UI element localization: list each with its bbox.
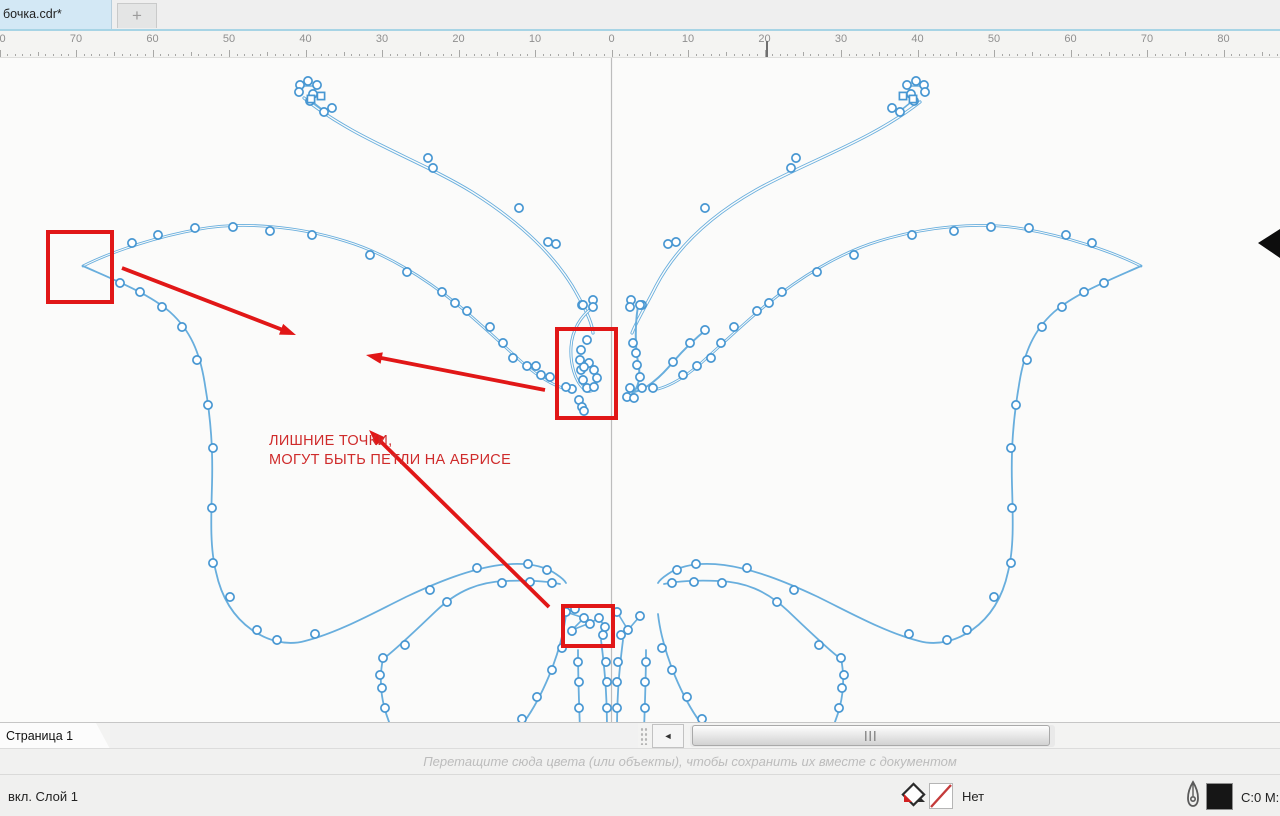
annotation-line1: ЛИШНИЕ ТОЧКИ, bbox=[269, 433, 392, 449]
path-node[interactable] bbox=[613, 678, 621, 686]
ruler-minor-tick bbox=[351, 54, 352, 56]
path-node[interactable] bbox=[463, 307, 471, 315]
path-node[interactable] bbox=[593, 374, 601, 382]
ruler-minor-tick bbox=[397, 54, 398, 56]
path-node[interactable] bbox=[575, 678, 583, 686]
path-node[interactable] bbox=[838, 684, 846, 692]
ruler-minor-tick bbox=[61, 54, 62, 56]
ruler-minor-tick bbox=[244, 54, 245, 56]
ruler-minor-tick bbox=[114, 52, 115, 56]
ruler-minor-tick bbox=[451, 54, 452, 56]
ruler-minor-tick bbox=[1055, 54, 1056, 56]
path-node[interactable] bbox=[577, 346, 585, 354]
ruler-minor-tick bbox=[237, 54, 238, 56]
ruler-minor-tick bbox=[527, 54, 528, 56]
path-node[interactable] bbox=[686, 339, 694, 347]
path-node[interactable] bbox=[552, 240, 560, 248]
path-node[interactable] bbox=[116, 279, 124, 287]
path-node[interactable] bbox=[226, 593, 234, 601]
path-node[interactable] bbox=[311, 630, 319, 638]
path-node[interactable] bbox=[632, 349, 640, 357]
path-node[interactable] bbox=[636, 301, 644, 309]
curve-segment[interactable] bbox=[521, 614, 566, 722]
path-node[interactable] bbox=[603, 704, 611, 712]
path-node-square[interactable] bbox=[899, 92, 906, 99]
ruler-minor-tick bbox=[803, 52, 804, 56]
path-node[interactable] bbox=[599, 631, 607, 639]
path-node[interactable] bbox=[546, 373, 554, 381]
document-tab-bar: бочка.cdr* + bbox=[0, 0, 1280, 29]
ruler-label: 30 bbox=[821, 33, 861, 45]
path-node[interactable] bbox=[429, 164, 437, 172]
vector-artwork[interactable] bbox=[0, 57, 1280, 722]
path-node[interactable] bbox=[579, 376, 587, 384]
ruler-minor-tick bbox=[1201, 54, 1202, 56]
path-node[interactable] bbox=[1023, 356, 1031, 364]
ruler-minor-tick bbox=[642, 54, 643, 56]
path-node[interactable] bbox=[718, 579, 726, 587]
ruler-minor-tick bbox=[443, 54, 444, 56]
path-node[interactable] bbox=[790, 586, 798, 594]
no-fill-swatch[interactable] bbox=[929, 783, 953, 809]
ruler-minor-tick bbox=[1277, 54, 1278, 56]
path-node[interactable] bbox=[950, 227, 958, 235]
path-node[interactable] bbox=[690, 578, 698, 586]
path-node[interactable] bbox=[209, 559, 217, 567]
path-node[interactable] bbox=[626, 384, 634, 392]
path-node[interactable] bbox=[1007, 444, 1015, 452]
ruler-minor-tick bbox=[1162, 54, 1163, 56]
ruler-minor-tick bbox=[749, 54, 750, 56]
ruler-major-tick bbox=[841, 50, 842, 57]
path-node[interactable] bbox=[636, 373, 644, 381]
path-node[interactable] bbox=[601, 623, 609, 631]
path-node[interactable] bbox=[840, 671, 848, 679]
page-tab[interactable]: Страница 1 bbox=[0, 723, 110, 749]
path-node[interactable] bbox=[630, 394, 638, 402]
ruler-minor-tick bbox=[1116, 54, 1117, 56]
path-node[interactable] bbox=[888, 104, 896, 112]
ruler-minor-tick bbox=[971, 54, 972, 56]
ruler-minor-tick bbox=[573, 52, 574, 56]
path-node[interactable] bbox=[320, 108, 328, 116]
path-node[interactable] bbox=[636, 612, 644, 620]
path-node[interactable] bbox=[765, 299, 773, 307]
ruler-major-tick bbox=[1147, 50, 1148, 57]
ruler-minor-tick bbox=[1032, 52, 1033, 56]
path-node[interactable] bbox=[1058, 303, 1066, 311]
path-node[interactable] bbox=[366, 251, 374, 259]
path-node[interactable] bbox=[658, 644, 666, 652]
ruler-minor-tick bbox=[436, 54, 437, 56]
path-node[interactable] bbox=[424, 154, 432, 162]
path-node[interactable] bbox=[638, 384, 646, 392]
path-node[interactable] bbox=[589, 303, 597, 311]
ruler-minor-tick bbox=[328, 54, 329, 56]
path-node[interactable] bbox=[378, 684, 386, 692]
ruler-minor-tick bbox=[856, 54, 857, 56]
path-node[interactable] bbox=[672, 238, 680, 246]
ruler-minor-tick bbox=[1246, 54, 1247, 56]
path-node[interactable] bbox=[595, 614, 603, 622]
path-node[interactable] bbox=[626, 303, 634, 311]
path-node[interactable] bbox=[743, 564, 751, 572]
path-node[interactable] bbox=[575, 704, 583, 712]
ruler-major-tick bbox=[994, 50, 995, 57]
path-node[interactable] bbox=[543, 566, 551, 574]
ruler-minor-tick bbox=[1155, 54, 1156, 56]
path-node[interactable] bbox=[792, 154, 800, 162]
ruler-minor-tick bbox=[665, 54, 666, 56]
path-node[interactable] bbox=[633, 361, 641, 369]
path-node[interactable] bbox=[308, 231, 316, 239]
path-node[interactable] bbox=[642, 658, 650, 666]
path-node[interactable] bbox=[579, 301, 587, 309]
ruler-minor-tick bbox=[979, 54, 980, 56]
ruler-minor-tick bbox=[504, 54, 505, 56]
path-node[interactable] bbox=[1007, 559, 1015, 567]
ruler-minor-tick bbox=[481, 54, 482, 56]
ruler-minor-tick bbox=[1269, 54, 1270, 56]
path-node[interactable] bbox=[537, 371, 545, 379]
path-node[interactable] bbox=[580, 407, 588, 415]
scroll-left-button[interactable]: ◄ bbox=[652, 724, 684, 748]
path-node[interactable] bbox=[1025, 224, 1033, 232]
path-node[interactable] bbox=[586, 620, 594, 628]
path-node[interactable] bbox=[486, 323, 494, 331]
path-node[interactable] bbox=[568, 627, 576, 635]
ruler-minor-tick bbox=[810, 54, 811, 56]
ruler-minor-tick bbox=[107, 54, 108, 56]
ruler-label: 20 bbox=[745, 33, 785, 45]
ruler-minor-tick bbox=[596, 54, 597, 56]
ruler-label: 0 bbox=[592, 33, 632, 45]
path-node[interactable] bbox=[668, 579, 676, 587]
path-node[interactable] bbox=[438, 288, 446, 296]
ruler-minor-tick bbox=[344, 52, 345, 56]
path-node[interactable] bbox=[1088, 239, 1096, 247]
fill-diamond-icon[interactable] bbox=[898, 781, 926, 811]
path-node[interactable] bbox=[208, 504, 216, 512]
path-node[interactable] bbox=[583, 336, 591, 344]
path-node[interactable] bbox=[753, 307, 761, 315]
ruler-minor-tick bbox=[780, 54, 781, 56]
path-node[interactable] bbox=[668, 666, 676, 674]
path-node[interactable] bbox=[903, 81, 911, 89]
ruler-label: 60 bbox=[1051, 33, 1091, 45]
path-node[interactable] bbox=[813, 268, 821, 276]
path-node[interactable] bbox=[673, 566, 681, 574]
path-node[interactable] bbox=[717, 339, 725, 347]
path-node[interactable] bbox=[641, 704, 649, 712]
ruler-minor-tick bbox=[680, 54, 681, 56]
ruler-minor-tick bbox=[497, 52, 498, 56]
ruler-minor-tick bbox=[726, 52, 727, 56]
drawing-canvas[interactable]: ЛИШНИЕ ТОЧКИ,МОГУТ БЫТЬ ПЕТЛИ НА АБРИСЕ bbox=[0, 57, 1280, 722]
path-node[interactable] bbox=[273, 636, 281, 644]
curve-segment[interactable] bbox=[83, 225, 566, 389]
ruler-label: 70 bbox=[1127, 33, 1167, 45]
curve-segment[interactable] bbox=[664, 581, 841, 659]
path-node-square[interactable] bbox=[307, 95, 314, 102]
ruler-minor-tick bbox=[627, 54, 628, 56]
ruler-label: 70 bbox=[56, 33, 96, 45]
path-node[interactable] bbox=[548, 579, 556, 587]
ruler-minor-tick bbox=[787, 54, 788, 56]
splitter-grip-icon[interactable] bbox=[640, 727, 648, 745]
path-node[interactable] bbox=[905, 630, 913, 638]
ruler-minor-tick bbox=[221, 54, 222, 56]
ruler-major-tick bbox=[688, 50, 689, 57]
path-node[interactable] bbox=[313, 81, 321, 89]
path-node[interactable] bbox=[613, 704, 621, 712]
annotation-arrow-line bbox=[380, 358, 545, 390]
new-document-tab-button[interactable]: + bbox=[117, 3, 157, 28]
ruler-minor-tick bbox=[902, 54, 903, 56]
ruler-minor-tick bbox=[22, 54, 23, 56]
horizontal-scrollbar-thumb[interactable] bbox=[692, 725, 1050, 746]
path-node[interactable] bbox=[773, 598, 781, 606]
ruler-minor-tick bbox=[925, 54, 926, 56]
path-node[interactable] bbox=[669, 358, 677, 366]
path-node[interactable] bbox=[253, 626, 261, 634]
path-node[interactable] bbox=[209, 444, 217, 452]
path-node[interactable] bbox=[204, 401, 212, 409]
path-node[interactable] bbox=[426, 586, 434, 594]
path-node[interactable] bbox=[548, 666, 556, 674]
ruler-major-tick bbox=[229, 50, 230, 57]
path-node[interactable] bbox=[473, 564, 481, 572]
ruler-minor-tick bbox=[45, 54, 46, 56]
path-node[interactable] bbox=[835, 704, 843, 712]
ruler-label: 20 bbox=[439, 33, 479, 45]
page-strip-filler bbox=[110, 723, 638, 749]
ruler-minor-tick bbox=[956, 52, 957, 56]
ruler-label: 30 bbox=[362, 33, 402, 45]
ruler-minor-tick bbox=[550, 54, 551, 56]
path-node[interactable] bbox=[533, 693, 541, 701]
path-node[interactable] bbox=[328, 104, 336, 112]
ruler-minor-tick bbox=[833, 54, 834, 56]
path-node[interactable] bbox=[683, 693, 691, 701]
path-node[interactable] bbox=[701, 326, 709, 334]
path-node[interactable] bbox=[963, 626, 971, 634]
path-node[interactable] bbox=[524, 560, 532, 568]
ruler-minor-tick bbox=[1009, 54, 1010, 56]
path-node[interactable] bbox=[896, 108, 904, 116]
path-node[interactable] bbox=[908, 231, 916, 239]
black-arrow-cursor bbox=[1258, 229, 1280, 258]
path-node[interactable] bbox=[379, 654, 387, 662]
ruler-minor-tick bbox=[420, 52, 421, 56]
ruler-minor-tick bbox=[619, 54, 620, 56]
path-node[interactable] bbox=[518, 715, 526, 722]
ruler-minor-tick bbox=[1063, 54, 1064, 56]
path-node[interactable] bbox=[532, 362, 540, 370]
path-node[interactable] bbox=[499, 339, 507, 347]
path-node[interactable] bbox=[990, 593, 998, 601]
ruler-major-tick bbox=[306, 50, 307, 57]
horizontal-ruler[interactable]: 807060504030201001020304050607080 bbox=[0, 31, 1280, 58]
path-node[interactable] bbox=[603, 678, 611, 686]
path-node[interactable] bbox=[158, 303, 166, 311]
ruler-minor-tick bbox=[1208, 54, 1209, 56]
path-node[interactable] bbox=[693, 362, 701, 370]
ruler-minor-tick bbox=[275, 54, 276, 56]
annotation-text: ЛИШНИЕ ТОЧКИ,МОГУТ БЫТЬ ПЕТЛИ НА АБРИСЕ bbox=[269, 432, 511, 470]
path-node[interactable] bbox=[707, 354, 715, 362]
ruler-minor-tick bbox=[604, 54, 605, 56]
ruler-minor-tick bbox=[160, 54, 161, 56]
pen-nib-icon bbox=[1185, 780, 1201, 812]
path-node[interactable] bbox=[128, 239, 136, 247]
ruler-minor-tick bbox=[512, 54, 513, 56]
ruler-minor-tick bbox=[1185, 52, 1186, 56]
path-node[interactable] bbox=[515, 204, 523, 212]
path-node[interactable] bbox=[778, 288, 786, 296]
path-node[interactable] bbox=[815, 641, 823, 649]
ruler-minor-tick bbox=[137, 54, 138, 56]
path-node[interactable] bbox=[1100, 279, 1108, 287]
path-node[interactable] bbox=[544, 238, 552, 246]
ruler-minor-tick bbox=[413, 54, 414, 56]
ruler-minor-tick bbox=[168, 54, 169, 56]
horizontal-scrollbar[interactable] bbox=[690, 725, 1055, 747]
ruler-major-tick bbox=[382, 50, 383, 57]
ruler-minor-tick bbox=[887, 54, 888, 56]
path-node[interactable] bbox=[837, 654, 845, 662]
path-node[interactable] bbox=[178, 323, 186, 331]
path-node[interactable] bbox=[698, 715, 706, 722]
path-node[interactable] bbox=[850, 251, 858, 259]
color-drop-hint-bar: Перетащите сюда цвета (или объекты), что… bbox=[0, 748, 1280, 774]
curve-segment[interactable] bbox=[658, 266, 1141, 643]
annotation-arrow-head bbox=[279, 324, 296, 335]
ruler-label: 40 bbox=[286, 33, 326, 45]
path-node[interactable] bbox=[602, 658, 610, 666]
path-node[interactable] bbox=[523, 362, 531, 370]
path-node[interactable] bbox=[624, 626, 632, 634]
ruler-minor-tick bbox=[1139, 54, 1140, 56]
ruler-minor-tick bbox=[1132, 54, 1133, 56]
ruler-minor-tick bbox=[53, 54, 54, 56]
ruler-minor-tick bbox=[734, 54, 735, 56]
path-node[interactable] bbox=[943, 636, 951, 644]
path-node[interactable] bbox=[136, 288, 144, 296]
path-node[interactable] bbox=[304, 77, 312, 85]
ruler-minor-tick bbox=[589, 54, 590, 56]
path-node[interactable] bbox=[787, 164, 795, 172]
path-node-square[interactable] bbox=[909, 95, 916, 102]
outline-color-swatch[interactable] bbox=[1206, 783, 1233, 810]
document-tab[interactable]: бочка.cdr* bbox=[0, 0, 112, 29]
ruler-minor-tick bbox=[405, 54, 406, 56]
path-node-square[interactable] bbox=[317, 92, 324, 99]
active-layer-label: вкл. Слой 1 bbox=[8, 789, 78, 804]
path-node[interactable] bbox=[1062, 231, 1070, 239]
curve-segment[interactable] bbox=[658, 225, 1141, 389]
scrollbar-grip-icon bbox=[865, 731, 877, 741]
ruler-minor-tick bbox=[1239, 54, 1240, 56]
path-node[interactable] bbox=[1038, 323, 1046, 331]
path-node[interactable] bbox=[376, 671, 384, 679]
path-node[interactable] bbox=[1012, 401, 1020, 409]
path-node[interactable] bbox=[701, 204, 709, 212]
path-node[interactable] bbox=[664, 240, 672, 248]
path-node[interactable] bbox=[498, 579, 506, 587]
path-node[interactable] bbox=[266, 227, 274, 235]
path-node[interactable] bbox=[580, 363, 588, 371]
path-node[interactable] bbox=[451, 299, 459, 307]
path-node[interactable] bbox=[229, 223, 237, 231]
path-node[interactable] bbox=[641, 678, 649, 686]
path-node[interactable] bbox=[1080, 288, 1088, 296]
path-node[interactable] bbox=[381, 704, 389, 712]
ruler-minor-tick bbox=[864, 54, 865, 56]
ruler-minor-tick bbox=[711, 54, 712, 56]
path-node[interactable] bbox=[403, 268, 411, 276]
curve-segment[interactable] bbox=[658, 614, 703, 722]
path-node[interactable] bbox=[574, 658, 582, 666]
annotation-arrow-line bbox=[122, 268, 283, 330]
ruler-label: 10 bbox=[515, 33, 555, 45]
path-node[interactable] bbox=[730, 323, 738, 331]
ruler-minor-tick bbox=[826, 54, 827, 56]
ruler-minor-tick bbox=[122, 54, 123, 56]
ruler-minor-tick bbox=[933, 54, 934, 56]
ruler-minor-tick bbox=[359, 54, 360, 56]
ruler-major-tick bbox=[153, 50, 154, 57]
ruler-minor-tick bbox=[872, 54, 873, 56]
path-node[interactable] bbox=[509, 354, 517, 362]
path-node[interactable] bbox=[154, 231, 162, 239]
path-node[interactable] bbox=[692, 560, 700, 568]
path-node[interactable] bbox=[562, 383, 570, 391]
fill-none-label: Нет bbox=[962, 789, 984, 804]
ruler-minor-tick bbox=[1086, 54, 1087, 56]
ruler-minor-tick bbox=[252, 54, 253, 56]
ruler-label: 40 bbox=[898, 33, 938, 45]
path-node[interactable] bbox=[590, 383, 598, 391]
ruler-minor-tick bbox=[214, 54, 215, 56]
path-node[interactable] bbox=[921, 88, 929, 96]
path-node[interactable] bbox=[614, 658, 622, 666]
path-node[interactable] bbox=[401, 641, 409, 649]
path-node[interactable] bbox=[987, 223, 995, 231]
path-node[interactable] bbox=[912, 77, 920, 85]
ruler-minor-tick bbox=[130, 54, 131, 56]
path-node[interactable] bbox=[629, 339, 637, 347]
path-node[interactable] bbox=[443, 598, 451, 606]
path-node[interactable] bbox=[295, 88, 303, 96]
ruler-minor-tick bbox=[879, 52, 880, 56]
ruler-minor-tick bbox=[367, 54, 368, 56]
path-node[interactable] bbox=[679, 371, 687, 379]
ruler-minor-tick bbox=[428, 54, 429, 56]
ruler-minor-tick bbox=[742, 54, 743, 56]
ruler-minor-tick bbox=[634, 54, 635, 56]
ruler-minor-tick bbox=[99, 54, 100, 56]
path-node[interactable] bbox=[191, 224, 199, 232]
ruler-minor-tick bbox=[1216, 54, 1217, 56]
ruler-major-tick bbox=[76, 50, 77, 57]
path-node[interactable] bbox=[193, 356, 201, 364]
path-node[interactable] bbox=[649, 384, 657, 392]
annotation-arrow-head bbox=[366, 352, 383, 363]
ruler-major-tick bbox=[535, 50, 536, 57]
ruler-minor-tick bbox=[719, 54, 720, 56]
path-node[interactable] bbox=[1008, 504, 1016, 512]
